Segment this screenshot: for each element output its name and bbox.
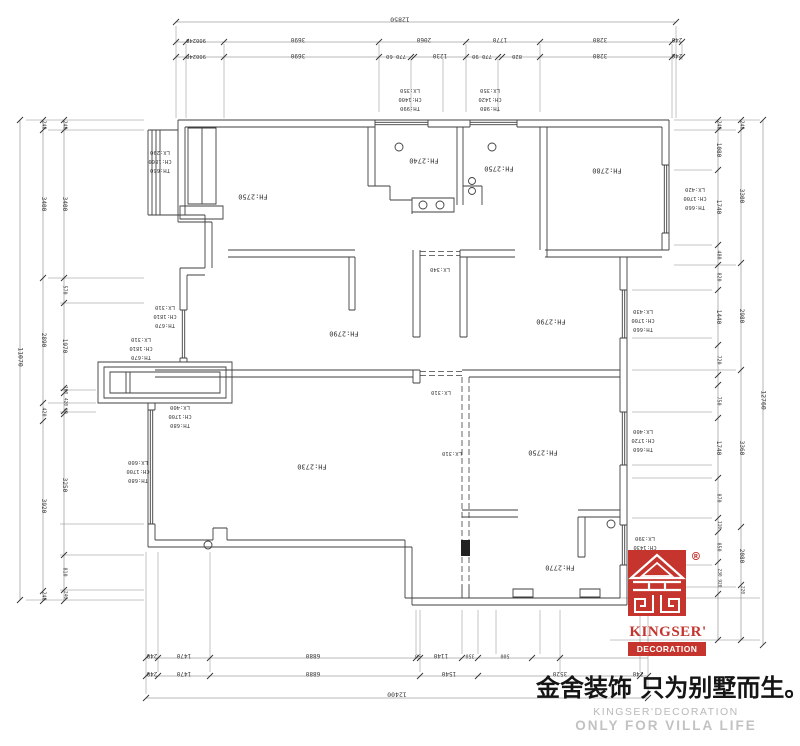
fixture-icon (469, 178, 476, 185)
sink-icon (419, 201, 427, 209)
downlight-icon (488, 143, 496, 151)
logo-mark (618, 550, 718, 620)
walls (98, 120, 669, 605)
sink-icon (436, 201, 444, 209)
fixture-icon (204, 541, 212, 549)
fixture-icon (469, 188, 476, 195)
registered-icon: ® (692, 550, 700, 565)
watermark: 金舍装饰 只为别墅而生。 KINGSER'DECORATION ONLY FOR… (536, 668, 796, 733)
kingser-logo: ® KINGSER' DECORATION (618, 550, 728, 656)
downlight-icon (395, 143, 403, 151)
logo-wordmark-bar: DECORATION (628, 642, 706, 656)
column (461, 540, 470, 556)
dashed-openings (420, 252, 469, 586)
watermark-slogan: ONLY FOR VILLA LIFE (536, 718, 796, 733)
watermark-chinese: 金舍装饰 只为别墅而生。 (536, 668, 796, 703)
logo-wordmark: KINGSER' (626, 624, 710, 641)
fixtures (204, 143, 615, 556)
floor-plan-canvas: 90024036902060177032802409002403690770 6… (0, 0, 800, 746)
watermark-brand: KINGSER'DECORATION (536, 706, 796, 718)
fixture-icon (607, 520, 615, 528)
